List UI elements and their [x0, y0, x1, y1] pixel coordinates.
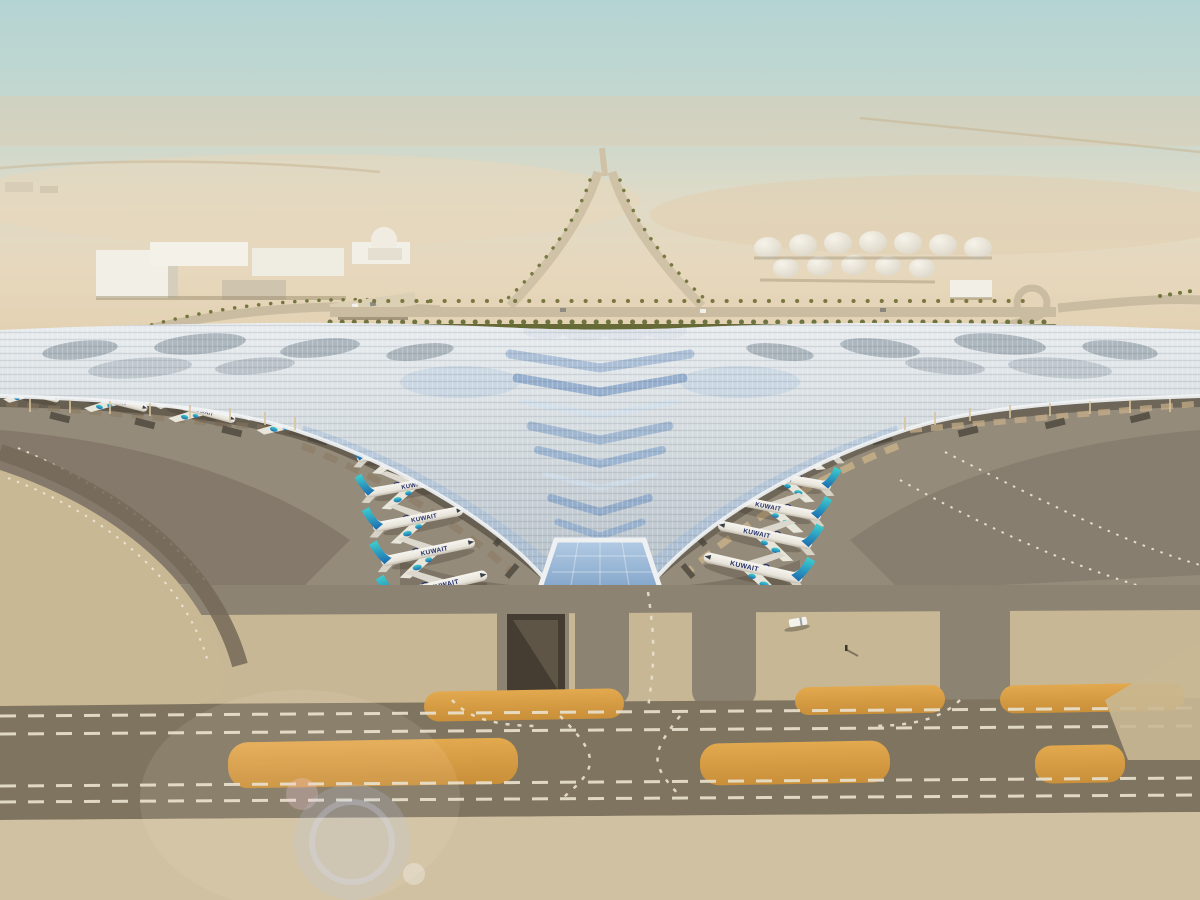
building-shadow: [950, 297, 992, 300]
distant-structure: [5, 182, 33, 192]
approach-road-stem: [602, 148, 605, 176]
warehouse-building: [150, 242, 248, 266]
lens-flare: [140, 690, 460, 900]
rendering-canvas: KUWAIT KUWAIT: [0, 0, 1200, 900]
car: [880, 308, 886, 312]
warehouse-building: [252, 248, 344, 276]
airport-aerial-rendering: KUWAIT KUWAIT: [0, 0, 1200, 900]
dome-base: [368, 248, 402, 260]
car: [700, 309, 706, 313]
warehouse-building: [950, 280, 992, 298]
tank-shadows: [760, 280, 935, 282]
distant-structure: [40, 186, 58, 193]
car: [560, 308, 566, 312]
building-shadows: [96, 296, 346, 300]
horizon-haze: [0, 96, 1200, 146]
